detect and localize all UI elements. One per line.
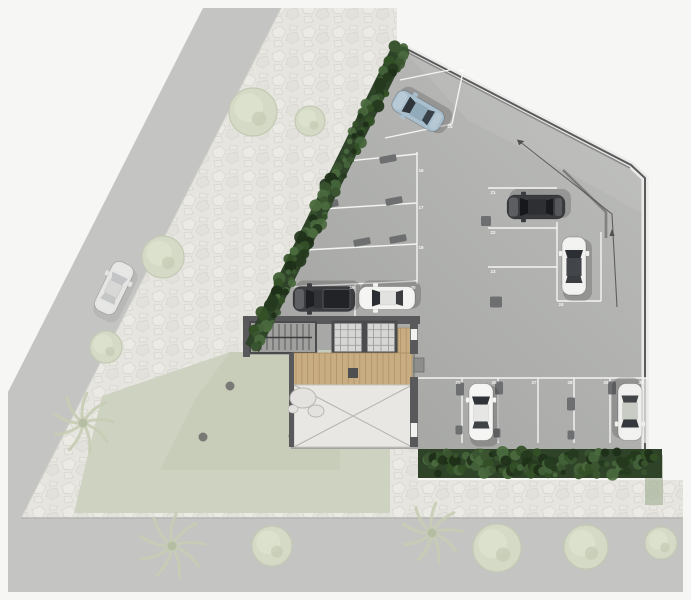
tree <box>473 524 521 572</box>
bollard <box>226 382 235 391</box>
tree <box>564 525 608 569</box>
stall-number: 20 <box>410 285 416 290</box>
wheel-stop <box>567 398 575 411</box>
boulder-3 <box>288 405 298 413</box>
tree <box>645 527 677 559</box>
stall-number: 29 <box>603 380 609 385</box>
utility-box <box>414 358 424 372</box>
tree <box>229 88 277 136</box>
stall-number: 26 <box>491 380 497 385</box>
stall-number: 16 <box>418 168 424 173</box>
wheel-stop <box>490 297 502 308</box>
car-sedan <box>559 237 592 301</box>
stall-number: 18 <box>418 245 424 250</box>
pillar <box>348 368 358 378</box>
tree <box>142 236 184 278</box>
stall-number: 25 <box>455 380 461 385</box>
stall-number: 14 <box>459 68 465 73</box>
stall-number: 28 <box>567 380 573 385</box>
stall-number: 30 <box>638 380 644 385</box>
car-sedan <box>612 378 645 441</box>
stall-number: 27 <box>531 380 537 385</box>
hedge-se <box>418 446 662 481</box>
car-sedan <box>507 189 571 222</box>
stall-number: 21 <box>490 190 496 195</box>
tree <box>90 331 122 363</box>
wheel-stop <box>568 431 575 440</box>
tree <box>295 106 325 136</box>
wheel-stop <box>456 426 463 435</box>
boulder-2 <box>308 405 324 417</box>
louver-post-1 <box>411 329 418 340</box>
stall-number: 22 <box>490 230 496 235</box>
bollard <box>199 433 208 442</box>
stall-number: 24 <box>558 302 564 307</box>
stall-number: 19 <box>349 285 355 290</box>
stall-number: 15 <box>447 124 453 129</box>
site-plan-svg: 1415161718192021222324252627282930 <box>0 0 691 600</box>
louver-post-2 <box>411 423 418 437</box>
stall-number: 17 <box>418 205 424 210</box>
wheel-stop <box>481 216 491 226</box>
tree <box>252 526 292 566</box>
car-sedan <box>466 384 499 447</box>
site-plan: 1415161718192021222324252627282930 <box>0 0 691 600</box>
stall-number: 23 <box>490 269 496 274</box>
